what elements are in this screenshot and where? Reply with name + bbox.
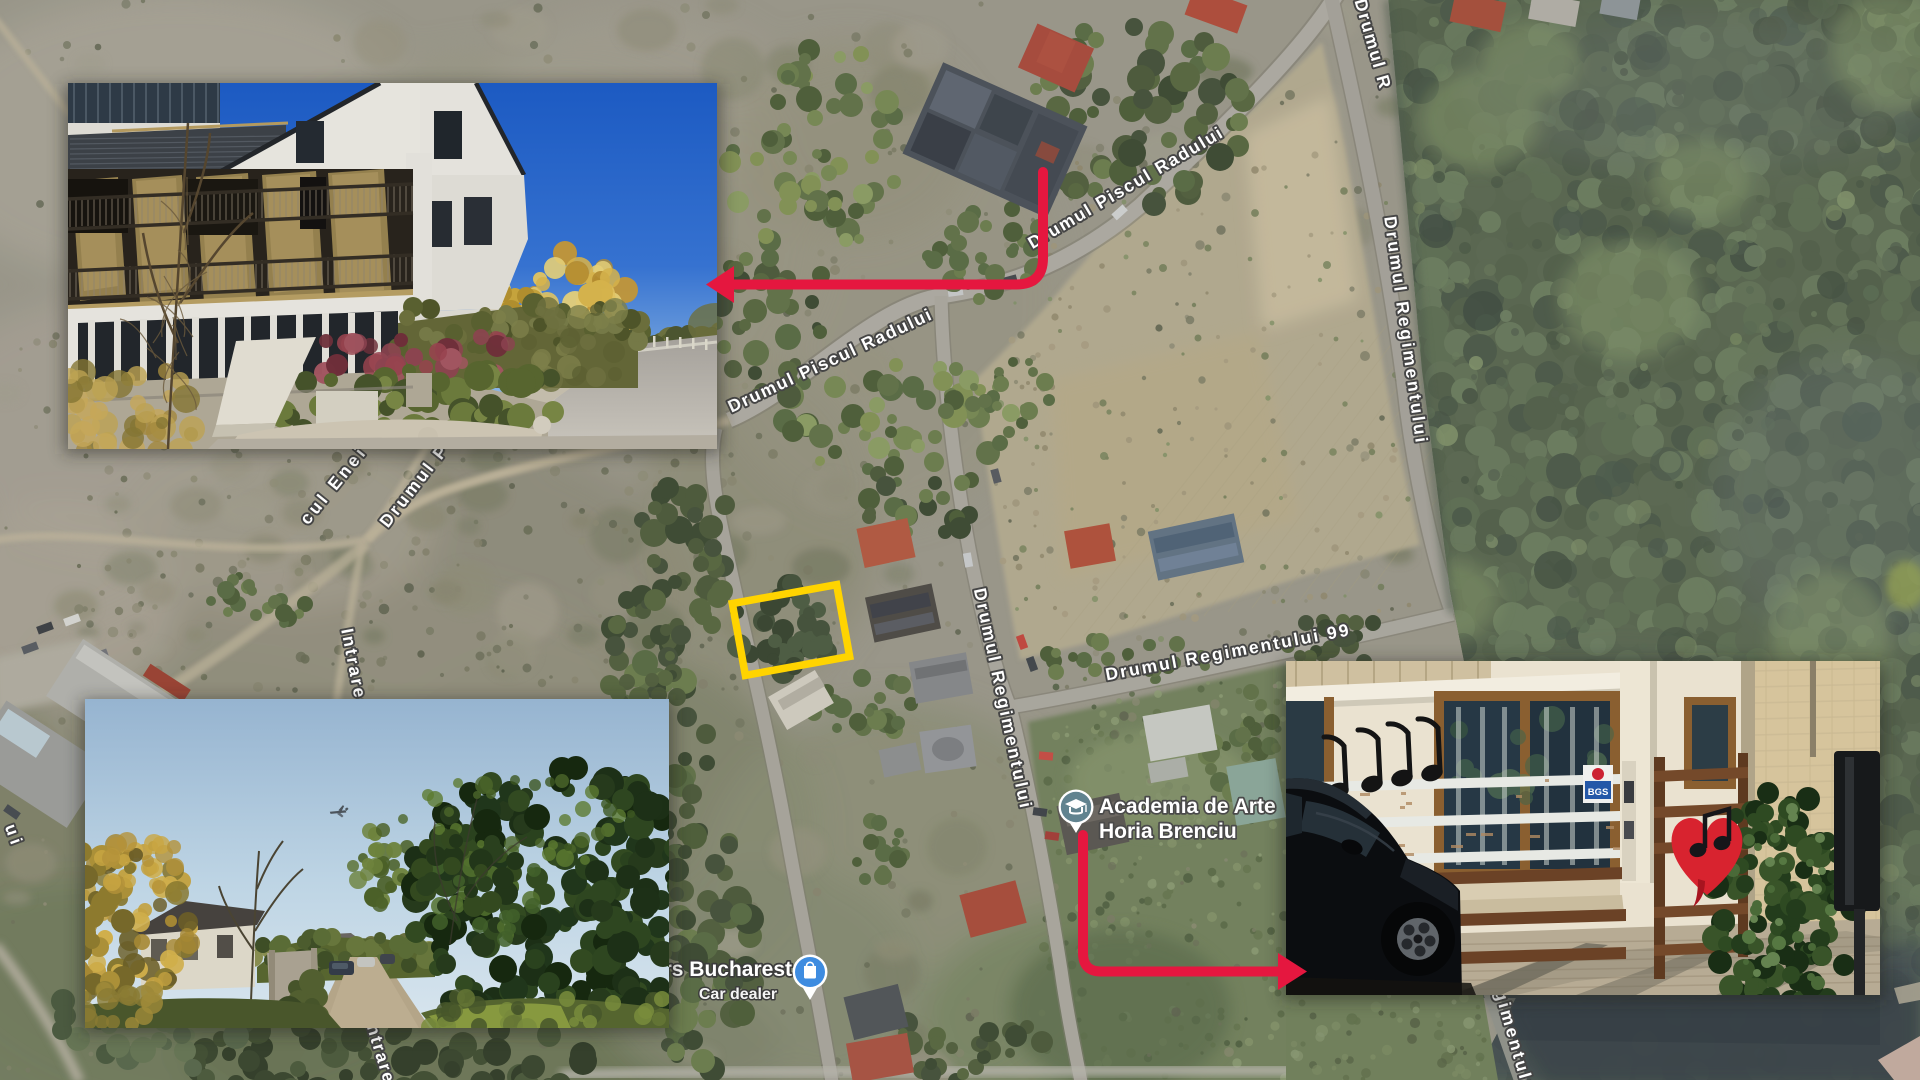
svg-text:BGS: BGS — [1588, 787, 1609, 798]
svg-text:Horia Brenciu: Horia Brenciu — [1099, 820, 1237, 843]
svg-text:rs Bucharest: rs Bucharest — [664, 958, 792, 981]
svg-text:Car dealer: Car dealer — [699, 986, 777, 1003]
svg-text:Academia de Arte: Academia de Arte — [1099, 795, 1276, 818]
